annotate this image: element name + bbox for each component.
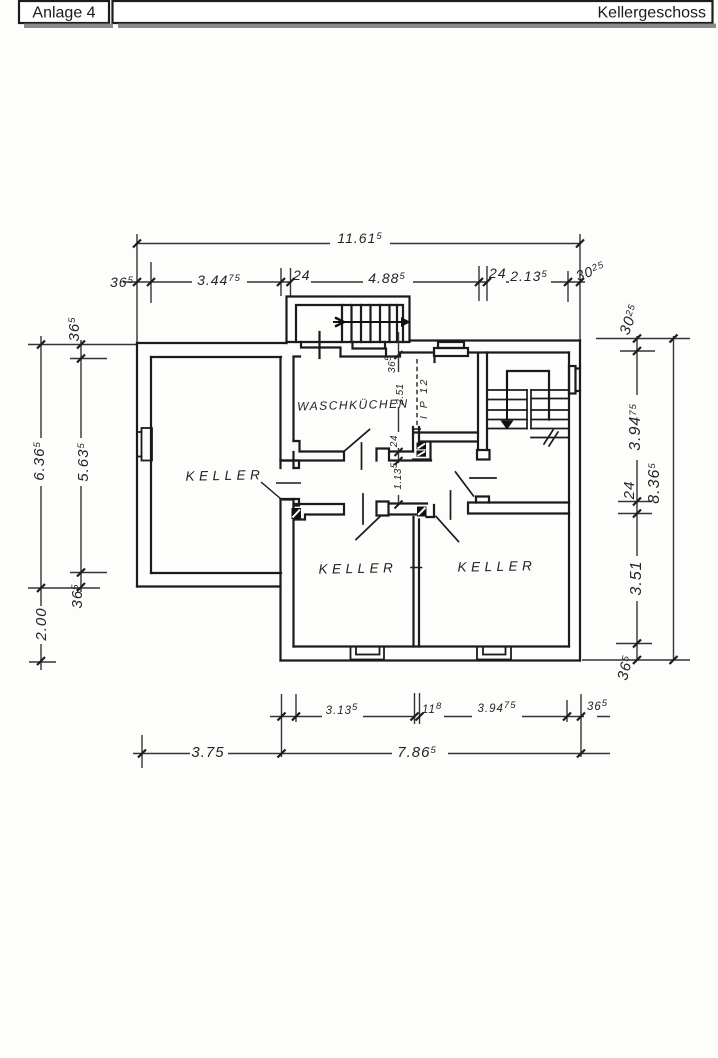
svg-text:WASCHKÜCHEN: WASCHKÜCHEN [297, 397, 409, 414]
svg-text:Kellergeschoss: Kellergeschoss [598, 5, 707, 22]
svg-text:I P 12: I P 12 [418, 377, 430, 419]
svg-text:3.51: 3.51 [628, 560, 645, 595]
svg-text:KELLER: KELLER [185, 467, 264, 483]
svg-text:24: 24 [488, 265, 507, 281]
svg-text:24: 24 [621, 481, 638, 501]
svg-text:24: 24 [292, 267, 311, 283]
svg-text:3.75: 3.75 [191, 744, 224, 761]
svg-text:24: 24 [389, 435, 400, 448]
svg-text:11.615: 11.615 [337, 230, 382, 246]
svg-text:KELLER: KELLER [457, 558, 536, 574]
svg-text:KELLER: KELLER [318, 560, 397, 576]
svg-text:Anlage 4: Anlage 4 [32, 5, 95, 22]
svg-text:2.00: 2.00 [33, 607, 50, 641]
